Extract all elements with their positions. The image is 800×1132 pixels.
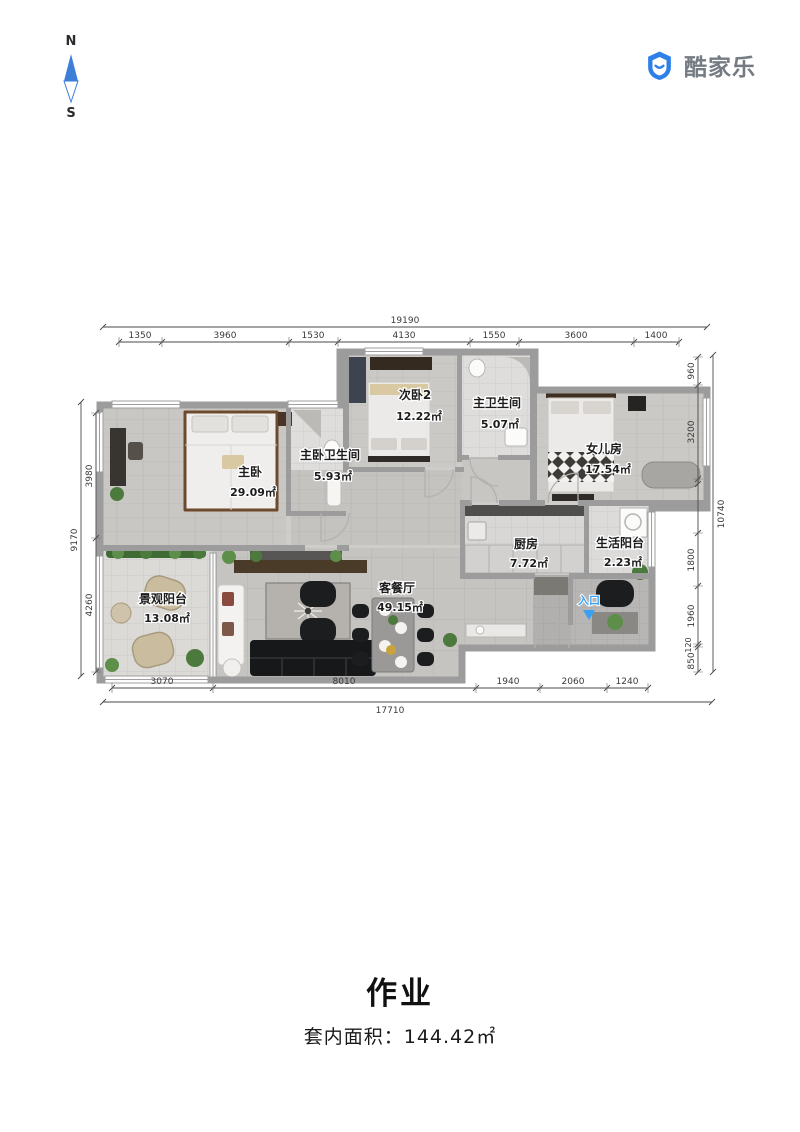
room-area-master: 29.09㎡ [230, 485, 276, 499]
main-bath-toilet [469, 359, 485, 377]
balcony-table [111, 603, 131, 623]
dim-right-seg-0: 960 [687, 362, 697, 379]
corridor-plant [222, 550, 236, 564]
room-area-master-bath: 5.93㎡ [314, 469, 352, 483]
room-label-service-balcony: 生活阳台 [596, 535, 644, 550]
compass-needle-south [64, 81, 78, 102]
dim-bottom-seg-0: 3070 [151, 677, 174, 687]
dim-top-seg-2: 1530 [302, 331, 325, 341]
kitchen-sink [468, 522, 486, 540]
dim-right-seg-4: 120 [684, 637, 693, 652]
dim-left-seg-1: 4260 [85, 593, 95, 616]
room-label-main-bath: 主卫生间 [473, 395, 521, 410]
room-area-main-bath: 5.07㎡ [481, 417, 519, 431]
dim-top-seg-1: 3960 [214, 331, 237, 341]
dim-right-seg-5: 850 [687, 652, 697, 669]
bedroom2-closet [348, 357, 366, 403]
room-area-living-dining: 49.15㎡ [377, 600, 423, 614]
dim-bottom-seg-4: 1240 [616, 677, 639, 687]
side-table [223, 659, 241, 677]
compass-south-label: S [66, 106, 75, 121]
room-label-master-bath: 主卧卫生间 [300, 447, 360, 462]
room-area-kitchen: 7.72㎡ [510, 556, 548, 570]
dim-bottom-seg-1: 8010 [333, 677, 356, 687]
master-plant [110, 487, 124, 501]
dining-plant [443, 633, 457, 647]
room-area-daughter: 17.54㎡ [585, 462, 631, 476]
compass-needle-north [64, 54, 78, 81]
corridor-cabinet [234, 560, 367, 573]
daughter-tv [628, 396, 646, 411]
balcony-plant-1 [186, 649, 204, 667]
room-label-kitchen: 厨房 [514, 536, 538, 551]
brand-name: 酷家乐 [684, 48, 756, 82]
bedroom2-cabinet [370, 357, 432, 370]
compass-north-label: N [66, 34, 77, 49]
dim-bottom-total: 17710 [376, 706, 405, 716]
dim-right-seg-3: 1960 [687, 604, 697, 627]
dim-top-seg-5: 3600 [565, 331, 588, 341]
armchair-1 [300, 581, 336, 607]
dim-right-total: 10740 [717, 499, 727, 528]
daughter-bench [552, 494, 594, 501]
porch-plant-1 [607, 614, 623, 630]
floorplan-canvas: N S [0, 0, 800, 1132]
plan-title: 作业 [0, 968, 800, 1013]
kitchen-counter-top [465, 505, 585, 516]
daughter-chaise [642, 462, 700, 488]
master-desk [110, 428, 126, 486]
entry-console [466, 624, 526, 637]
washer [620, 508, 647, 537]
tv-plant-2 [330, 550, 342, 562]
entrance-label: 入口 [578, 594, 600, 607]
room-label-living-dining: 客餐厅 [378, 580, 415, 595]
dim-left-seg-0: 3980 [85, 464, 95, 487]
dim-top-seg-4: 1550 [483, 331, 506, 341]
white-sofa [218, 585, 244, 665]
dim-left-total: 9170 [70, 528, 80, 551]
interior-area-label: 套内面积：144.42㎡ [0, 1022, 800, 1049]
compass: N S [64, 34, 78, 121]
room-area-bedroom2: 12.22㎡ [396, 409, 442, 423]
dim-top-seg-6: 1400 [645, 331, 668, 341]
porch-chair [596, 580, 634, 607]
room-area-service-balcony: 2.23㎡ [604, 555, 642, 569]
kujiale-logo: 酷家乐 [644, 48, 756, 82]
dim-top-seg-0: 1350 [129, 331, 152, 341]
dim-bottom-seg-2: 1940 [497, 677, 520, 687]
room-area-view-balcony: 13.08㎡ [144, 611, 190, 625]
dim-right-seg-2: 1800 [687, 548, 697, 571]
dim-top-seg-3: 4130 [393, 331, 416, 341]
floorplan-page: N S [0, 0, 800, 1132]
master-desk-chair [128, 442, 143, 460]
room-label-daughter: 女儿房 [586, 441, 622, 456]
tv-plant-1 [250, 550, 262, 562]
tv-console [250, 551, 342, 560]
dim-bottom-seg-3: 2060 [562, 677, 585, 687]
room-label-master: 主卧 [238, 464, 262, 479]
kujiale-shield-icon [644, 50, 675, 81]
dim-top-total: 19190 [391, 316, 420, 326]
dim-right-seg-1: 3200 [687, 420, 697, 443]
room-label-bedroom2: 次卧2 [399, 387, 431, 402]
balcony-plant-2 [105, 658, 119, 672]
room-label-view-balcony: 景观阳台 [139, 591, 187, 606]
